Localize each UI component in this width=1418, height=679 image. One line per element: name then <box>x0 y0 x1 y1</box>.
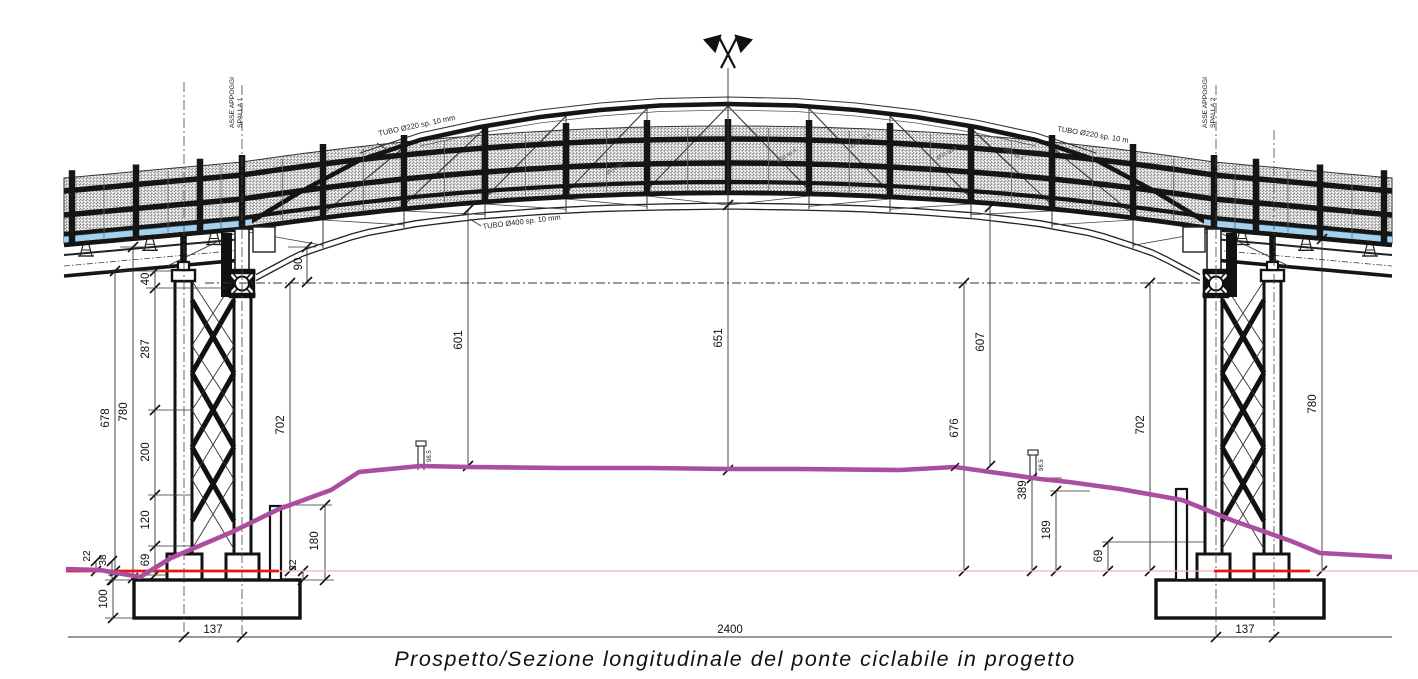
svg-text:389: 389 <box>1017 480 1029 499</box>
svg-text:98.5: 98.5 <box>1039 459 1045 471</box>
svg-text:ASSE APPOGGI: ASSE APPOGGI <box>229 77 236 128</box>
svg-text:702: 702 <box>275 415 287 434</box>
svg-text:22: 22 <box>288 559 299 571</box>
svg-text:22: 22 <box>82 550 93 562</box>
svg-text:90: 90 <box>293 258 305 271</box>
svg-text:ASSE APPOGGI: ASSE APPOGGI <box>1202 77 1209 128</box>
svg-text:780: 780 <box>118 402 130 421</box>
svg-text:SPALLA 1: SPALLA 1 <box>237 97 244 128</box>
svg-text:702: 702 <box>1135 415 1147 434</box>
svg-text:601: 601 <box>453 330 465 349</box>
svg-text:189: 189 <box>1041 520 1053 539</box>
svg-text:38: 38 <box>98 554 109 566</box>
svg-text:180: 180 <box>309 531 321 550</box>
svg-text:137: 137 <box>1235 624 1254 636</box>
svg-text:Prospetto/Sezione longitudinal: Prospetto/Sezione longitudinale del pont… <box>394 647 1075 671</box>
svg-text:780: 780 <box>1307 394 1319 413</box>
svg-text:69: 69 <box>140 554 152 567</box>
svg-text:100: 100 <box>98 589 110 608</box>
svg-text:676: 676 <box>949 418 961 437</box>
svg-text:200: 200 <box>140 442 152 461</box>
svg-text:SPALLA 2: SPALLA 2 <box>1210 97 1217 128</box>
svg-text:2400: 2400 <box>717 624 743 636</box>
svg-text:287: 287 <box>140 339 152 358</box>
svg-text:607: 607 <box>975 332 987 351</box>
svg-text:678: 678 <box>100 408 112 427</box>
svg-text:651: 651 <box>713 328 725 347</box>
svg-text:98.5: 98.5 <box>427 450 433 462</box>
svg-text:40: 40 <box>140 273 152 286</box>
svg-text:69: 69 <box>1093 550 1105 563</box>
svg-text:120: 120 <box>140 510 152 529</box>
svg-text:137: 137 <box>203 624 222 636</box>
